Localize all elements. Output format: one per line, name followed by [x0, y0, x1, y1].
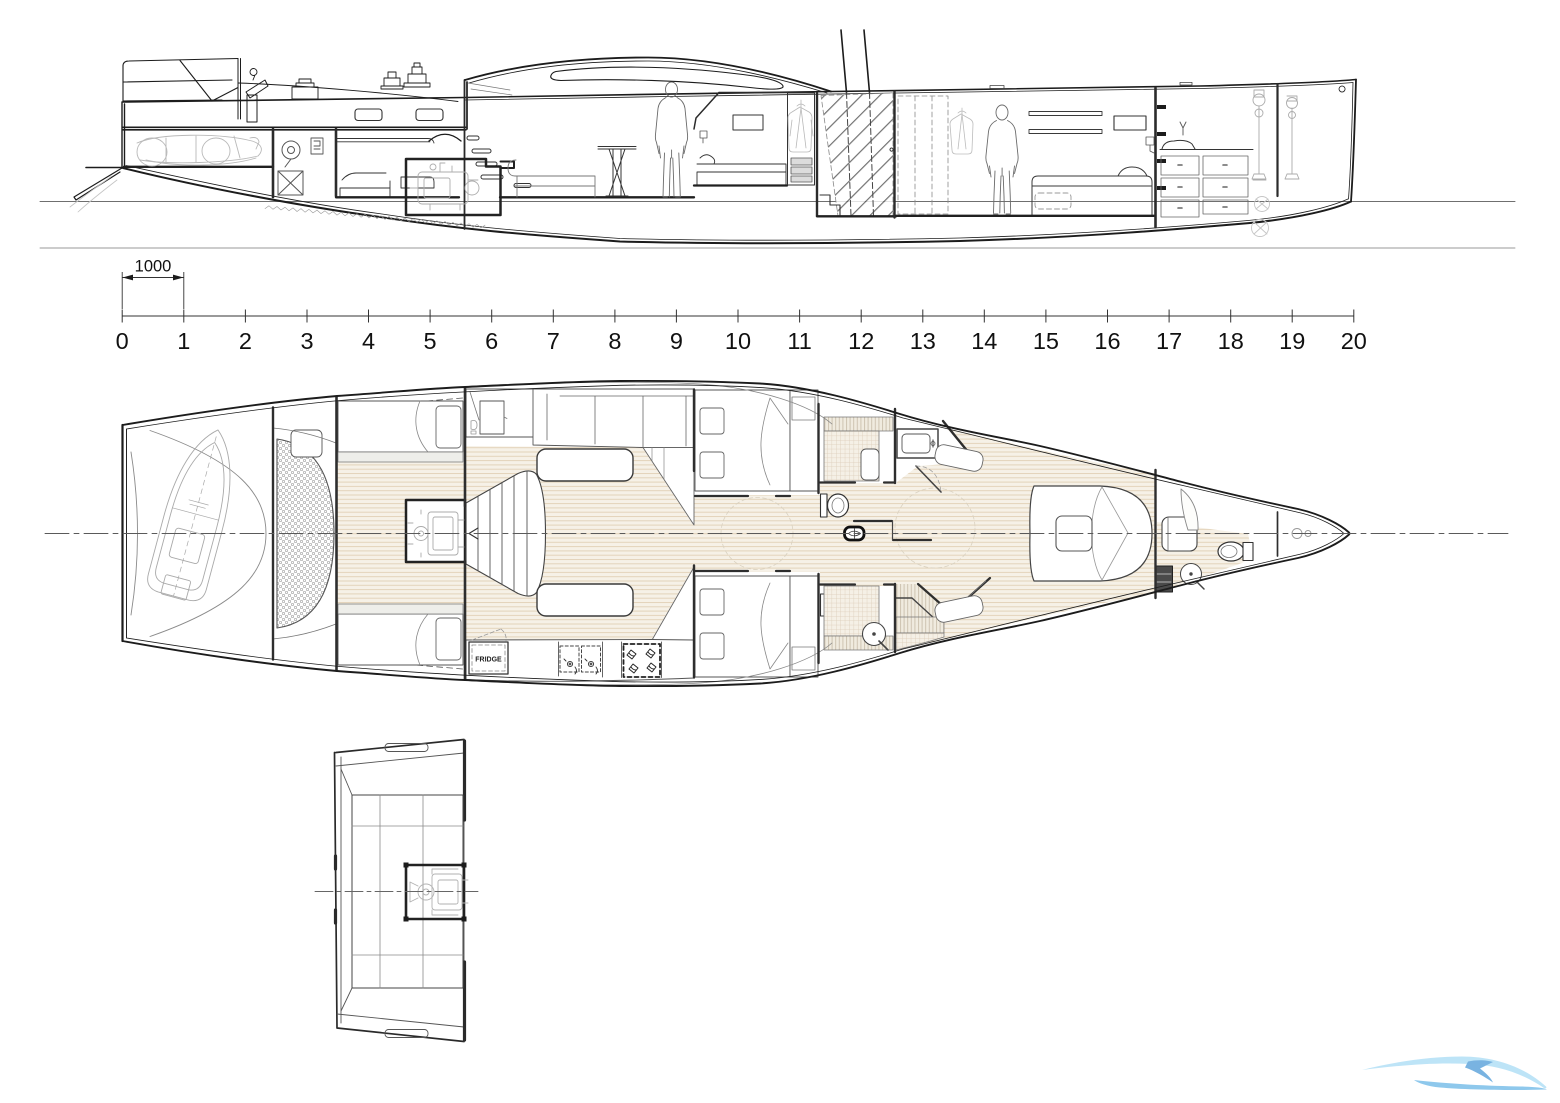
svg-text:1000: 1000: [135, 258, 172, 276]
svg-text:17: 17: [1156, 328, 1182, 354]
svg-text:10: 10: [725, 328, 751, 354]
svg-text:19: 19: [1279, 328, 1305, 354]
svg-text:5: 5: [424, 328, 437, 354]
svg-text:7: 7: [547, 328, 560, 354]
svg-text:12: 12: [848, 328, 874, 354]
svg-text:16: 16: [1094, 328, 1120, 354]
svg-text:OM: OM: [1441, 1068, 1463, 1083]
svg-text:15: 15: [1033, 328, 1059, 354]
svg-text:8: 8: [608, 328, 621, 354]
svg-text:3: 3: [300, 328, 313, 354]
svg-text:FRIDGE: FRIDGE: [475, 657, 502, 664]
svg-text:1: 1: [177, 328, 190, 354]
svg-text:20: 20: [1341, 328, 1367, 354]
svg-text:11: 11: [787, 328, 811, 354]
svg-text:18: 18: [1218, 328, 1244, 354]
svg-text:2: 2: [239, 328, 252, 354]
svg-text:0: 0: [116, 328, 129, 354]
svg-text:14: 14: [971, 328, 997, 354]
svg-text:6: 6: [485, 328, 498, 354]
svg-text:4: 4: [362, 328, 375, 354]
svg-text:13: 13: [910, 328, 936, 354]
svg-text:9: 9: [670, 328, 683, 354]
